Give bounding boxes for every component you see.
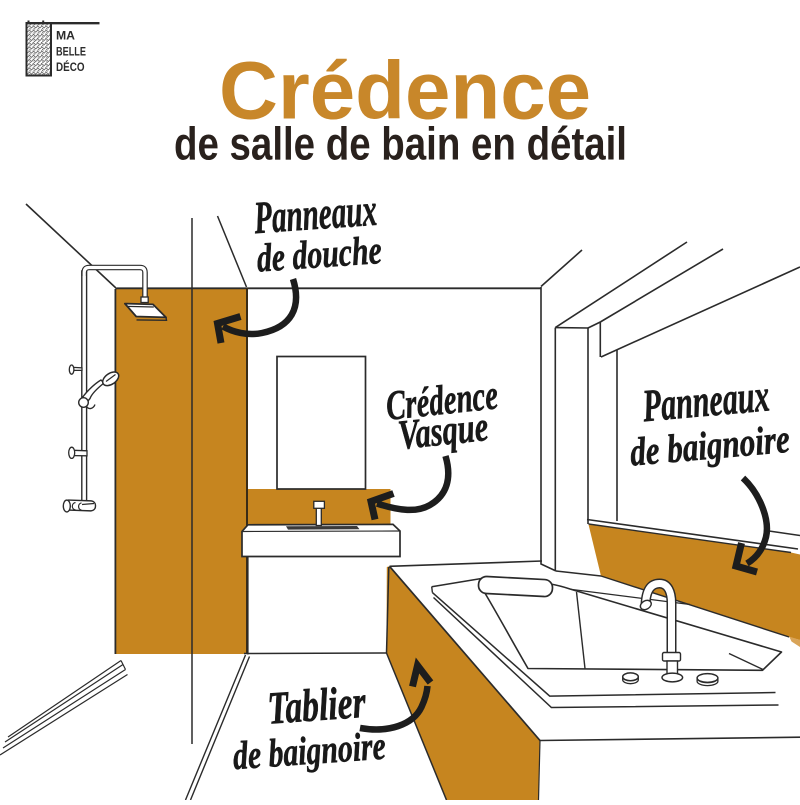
svg-text:DÉCO: DÉCO (56, 61, 85, 74)
svg-text:BELLE: BELLE (56, 46, 86, 58)
svg-text:de douche: de douche (255, 227, 383, 281)
svg-text:MA: MA (56, 30, 75, 42)
svg-text:de salle de bain en détail: de salle de bain en détail (174, 118, 627, 170)
svg-text:Vasque: Vasque (396, 404, 490, 459)
